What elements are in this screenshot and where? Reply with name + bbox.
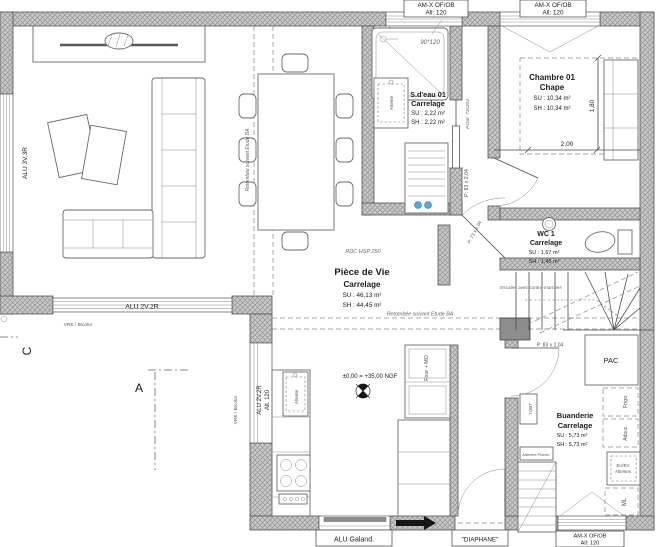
room-su: SU : 1,67 m² — [529, 250, 560, 256]
room-sh: SH : 5,73 m² — [557, 442, 588, 448]
waits-label: Attentes — [615, 469, 631, 474]
room-sh: SH : 44,45 m² — [343, 302, 382, 309]
tall-units — [398, 420, 450, 516]
room-sh: SH : 2,22 m² — [411, 120, 445, 126]
west-wall-upper — [250, 314, 272, 343]
room-finish: Carrelage — [344, 280, 381, 289]
radiator-valve — [415, 202, 422, 209]
washer-label: ML — [622, 497, 628, 506]
bedroom-left-wall — [488, 26, 500, 158]
section-letter-a: A — [135, 381, 143, 395]
window-sill-height: All: 120 — [425, 10, 447, 17]
sofa-horizontal — [63, 210, 153, 258]
south-wall-right — [232, 296, 272, 314]
heat-pump-label: PAC — [604, 356, 619, 365]
radiator-valve — [425, 202, 432, 209]
laundry-door-arc — [511, 348, 559, 396]
fridge-label: Frigo — [623, 396, 629, 409]
plumbing-waits-label: Attentes Plomb. — [522, 452, 549, 457]
toilet-tank — [618, 230, 632, 254]
room-su: SU : 5,73 m² — [557, 433, 588, 439]
fridge-slot — [603, 388, 638, 416]
living-room — [33, 26, 205, 258]
shower-size: 90*120 — [420, 39, 440, 46]
toilet — [583, 229, 617, 255]
stairs-note: Escalier avec contre-marches — [500, 285, 562, 290]
window-type-label: AM-X OF/OB — [417, 2, 454, 9]
room-finish: Carrelage — [411, 99, 445, 108]
bedroom-door-leaf — [494, 158, 538, 178]
room-su: SU : 2,22 m² — [411, 111, 445, 117]
wardrobe — [604, 60, 638, 160]
window-sill-height: All: 120 — [581, 541, 600, 547]
room-finish: Carrelage — [558, 421, 593, 430]
bottom-wall-1 — [250, 516, 319, 530]
dimension: 1,80 — [589, 99, 596, 112]
entry-door-arc — [458, 469, 505, 516]
room-su: SU : 46,13 m² — [343, 292, 382, 299]
dining-table — [258, 74, 334, 230]
section-letter-c: C — [20, 346, 34, 355]
sliding-door-label: ALU Galand. — [334, 537, 374, 544]
floor-plan: AM-X OF/OB All: 120 AM-X OF/OB All: 120 … — [0, 0, 666, 547]
room-finish: Chape — [540, 83, 565, 92]
bedroom-left-wall-stub — [488, 206, 500, 220]
door-size-label: P: 83 x 2,04 — [464, 169, 470, 197]
left-wall-upper — [0, 12, 13, 94]
dining-set — [239, 54, 353, 250]
ceiling-note: RDC HSP 250 — [345, 249, 381, 255]
room-name: WC 1 — [537, 231, 555, 238]
attente-note: Attente — [389, 95, 394, 110]
level-label: ±0,00 = +35,00 NGF — [343, 374, 398, 380]
room-su: SU : 10,34 m² — [533, 96, 570, 102]
window-type-label: ALU 2V.2R — [125, 304, 158, 311]
section-marks — [0, 316, 436, 530]
dimension: 2,00 — [561, 141, 574, 148]
entry-door-label: "DIAPHANE" — [462, 537, 499, 544]
beam-note: Retombée suivant Etude BA — [245, 128, 251, 191]
window-sill-height: All: 120 — [542, 10, 564, 17]
room-name: Buanderie — [557, 411, 594, 420]
room-name: Pièce de Vie — [334, 267, 389, 278]
wc-bottom-wall — [500, 258, 640, 270]
laundry-left-wall — [505, 398, 518, 516]
sill-note: VRE / Bicolor — [64, 322, 93, 328]
kitchen-hall-wall — [450, 345, 458, 516]
room-sh: SH : 1,45 m² — [529, 259, 560, 265]
door-size-label: P: 83 x 2,04 — [537, 343, 564, 349]
oven-label: Four + MO — [424, 355, 430, 380]
stair-walk-line — [525, 300, 618, 316]
south-wall-corner — [0, 296, 53, 314]
window-bottom-right — [558, 516, 626, 530]
west-wall-lower — [250, 443, 272, 516]
level-mark — [356, 384, 370, 398]
softener-slot — [603, 419, 638, 447]
hall-wall-stub — [438, 225, 450, 285]
window-sill-height: Alt. 120 — [265, 389, 271, 410]
pocket-door-label: P.Gal. 73x204 — [465, 99, 471, 129]
softener-label: Adouc. — [623, 425, 629, 441]
room-name: S.d'eau 01 — [410, 90, 446, 99]
sofa-vertical — [152, 78, 205, 258]
staircase — [516, 272, 640, 333]
sill-note: VRE / Bicolor — [233, 395, 239, 424]
bedroom-door-arc — [494, 178, 538, 206]
bottom-wall-4 — [626, 516, 654, 530]
stair-pier — [500, 318, 530, 340]
floor-plan-drawing: AM-X OF/OB All: 120 AM-X OF/OB All: 120 … — [0, 0, 666, 547]
bath-right-wall-upper — [450, 26, 462, 100]
laundry-left-wall-top — [505, 340, 518, 348]
window-type-label: AM-X OF/OB — [534, 2, 571, 9]
room-sh: SH : 10,34 m² — [533, 106, 570, 112]
top-wall-left — [0, 12, 386, 26]
bath-right-wall-lower — [450, 168, 462, 215]
window-type-label: AM-X OF/OB — [574, 534, 607, 540]
attente-note: Attente — [294, 389, 299, 404]
wc-basin — [543, 218, 556, 231]
cooktop — [277, 455, 310, 491]
window-type-label: ALU 3V.3R — [22, 147, 29, 179]
pocket-door-panel — [453, 126, 460, 168]
door-size-label: P: 73 x 2,04 — [466, 220, 482, 244]
window-type-label: ALU 2V.2R — [257, 385, 263, 415]
beam-note: Retombée suivant Etude BA — [387, 312, 454, 318]
tv-stand — [105, 33, 133, 49]
electrical-panel-label: TGBT — [528, 403, 533, 415]
room-name: Chambre 01 — [529, 73, 575, 82]
right-wall — [640, 12, 654, 530]
wc-top-wall — [500, 208, 640, 220]
room-finish: Carrelage — [530, 240, 562, 247]
waits-label: EU/EV — [617, 463, 630, 468]
